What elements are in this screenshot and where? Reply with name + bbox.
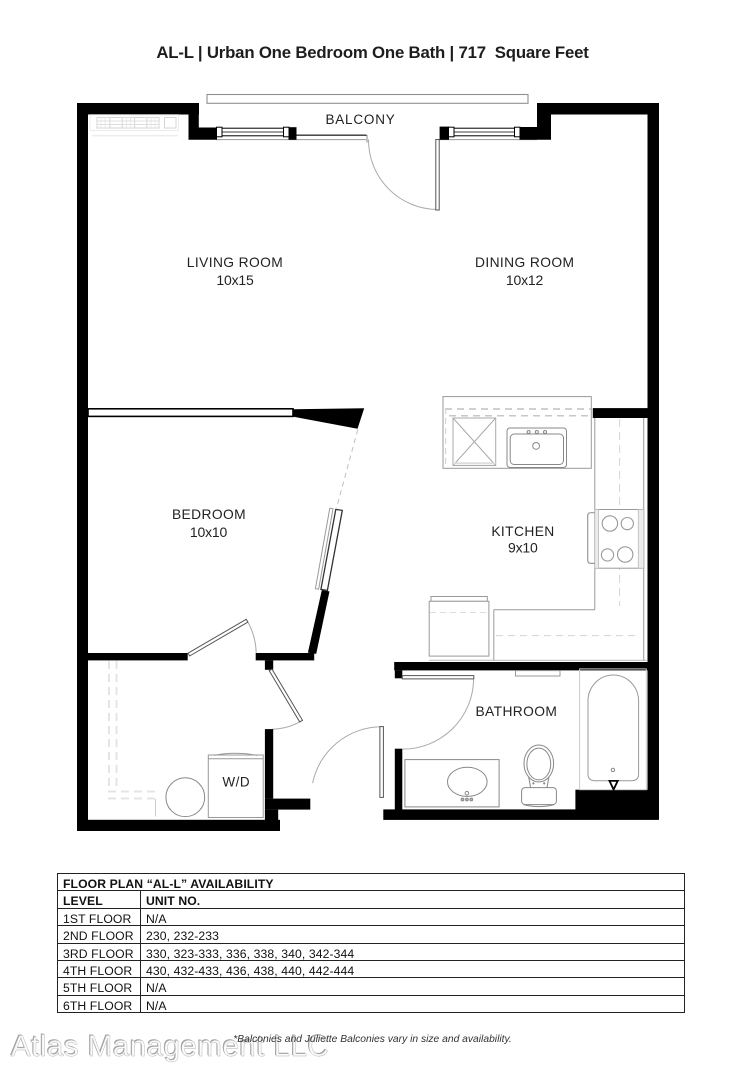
- svg-text:10x15: 10x15: [216, 272, 254, 288]
- svg-text:10x10: 10x10: [190, 524, 228, 540]
- svg-text:DINING ROOM: DINING ROOM: [475, 255, 574, 270]
- svg-text:BEDROOM: BEDROOM: [172, 507, 246, 522]
- svg-text:LIVING ROOM: LIVING ROOM: [187, 255, 283, 270]
- svg-text:KITCHEN: KITCHEN: [491, 524, 554, 539]
- svg-text:BALCONY: BALCONY: [325, 112, 395, 127]
- svg-text:W/D: W/D: [222, 774, 250, 789]
- svg-text:10x12: 10x12: [506, 272, 544, 288]
- svg-text:9x10: 9x10: [508, 540, 538, 556]
- svg-text:BATHROOM: BATHROOM: [475, 704, 557, 719]
